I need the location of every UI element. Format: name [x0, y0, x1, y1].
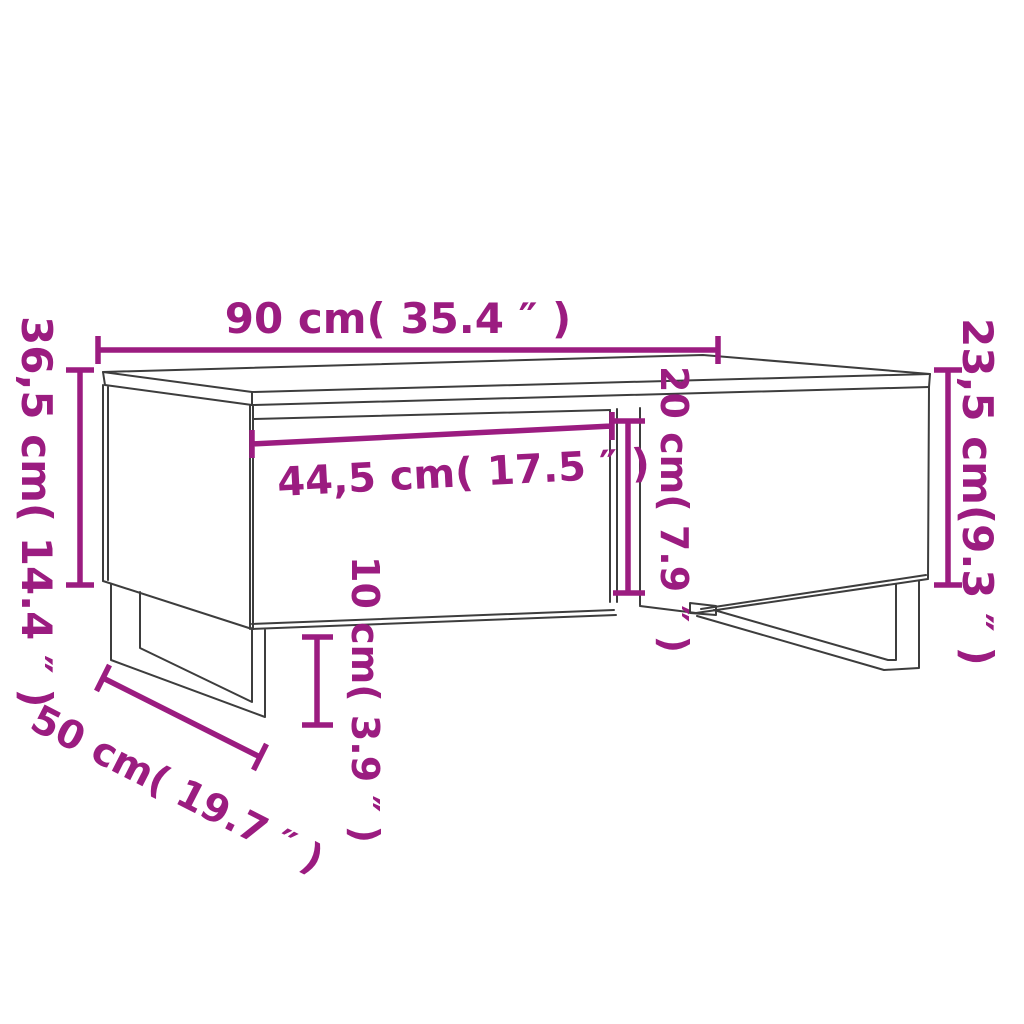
dimension-leg-clearance: 10 cm( 3.9 ″ ) — [302, 556, 387, 843]
dimension-height-left: 36,5 cm( 14.4 ″ ) — [12, 316, 94, 708]
dimension-height-left-line — [66, 370, 94, 585]
dimension-leg-clearance-line — [302, 637, 333, 725]
dimension-height-left-label: 36,5 cm( 14.4 ″ ) — [12, 316, 61, 708]
dimension-drawer-width: 44,5 cm( 17.5 ″ ) — [252, 412, 651, 506]
table-drawing — [103, 355, 930, 717]
tabletop-corner-right — [929, 374, 930, 387]
dimension-drawer-height: 20 cm( 7.9 ″ ) — [613, 366, 696, 653]
dimension-leg-clearance-label: 10 cm( 3.9 ″ ) — [343, 556, 387, 843]
panel-bottom-edge-inner — [701, 575, 926, 609]
dimension-annotations: 90 cm( 35.4 ″ ) 36,5 cm( 14.4 ″ ) 23,5 c… — [12, 294, 1002, 883]
right-leg-inner — [714, 584, 896, 660]
dimension-width-top-label: 90 cm( 35.4 ″ ) — [225, 294, 571, 343]
dimension-height-right: 23,5 cm(9.3 ″ ) — [934, 318, 1002, 666]
dimension-drawer-height-label: 20 cm( 7.9 ″ ) — [652, 366, 696, 653]
dimension-depth: 50 cm( 19.7 ″ ) — [23, 665, 330, 883]
product-dimension-diagram: 90 cm( 35.4 ″ ) 36,5 cm( 14.4 ″ ) 23,5 c… — [0, 0, 1024, 1024]
left-leg-inner — [140, 592, 252, 702]
tabletop-corner-left — [103, 372, 105, 385]
dimension-height-right-label: 23,5 cm(9.3 ″ ) — [953, 318, 1002, 666]
left-panel-bottom — [103, 581, 252, 629]
dimension-drawer-width-label: 44,5 cm( 17.5 ″ ) — [276, 441, 651, 506]
tabletop-top-face — [103, 355, 930, 392]
diagram-canvas: 90 cm( 35.4 ″ ) 36,5 cm( 14.4 ″ ) 23,5 c… — [0, 0, 1024, 1024]
table-right-edge — [928, 387, 929, 578]
drawer-top-edge — [253, 410, 610, 419]
dimension-width-top: 90 cm( 35.4 ″ ) — [98, 294, 718, 364]
right-leg-outer — [697, 581, 919, 670]
dimension-depth-label: 50 cm( 19.7 ″ ) — [23, 697, 330, 883]
